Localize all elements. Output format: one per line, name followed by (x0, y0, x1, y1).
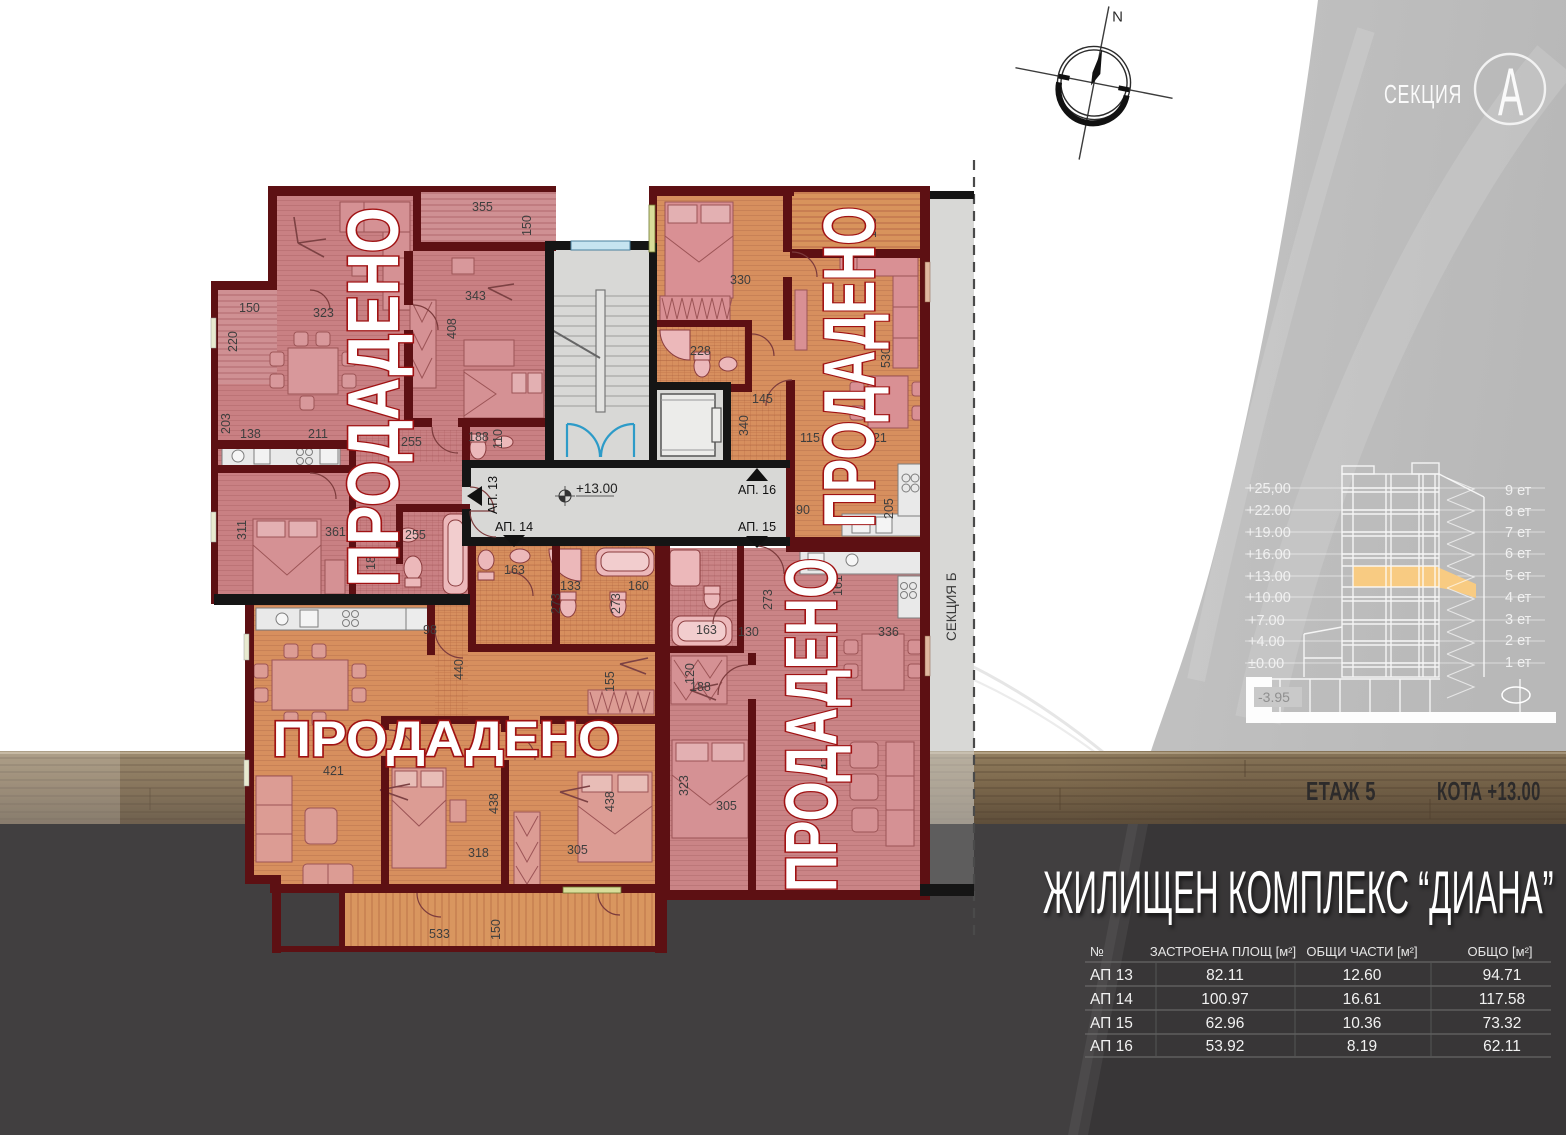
svg-text:+25,00: +25,00 (1246, 481, 1291, 497)
svg-text:73.32: 73.32 (1483, 1015, 1522, 1032)
svg-text:273: 273 (549, 593, 563, 614)
svg-text:8.19: 8.19 (1347, 1038, 1377, 1055)
svg-text:ПРОДАДЕНО: ПРОДАДЕНО (810, 207, 890, 528)
svg-text:АП. 13: АП. 13 (486, 476, 500, 514)
svg-text:3 ет: 3 ет (1505, 612, 1532, 628)
svg-text:62.96: 62.96 (1206, 1015, 1245, 1032)
svg-text:АП. 14: АП. 14 (495, 520, 533, 534)
svg-text:-3.95: -3.95 (1258, 689, 1290, 705)
svg-text:145: 145 (752, 392, 773, 406)
svg-text:100.97: 100.97 (1201, 991, 1248, 1008)
svg-text:273: 273 (609, 593, 623, 614)
svg-text:343: 343 (465, 289, 486, 303)
svg-text:355: 355 (472, 200, 493, 214)
svg-text:188: 188 (690, 680, 711, 694)
svg-text:408: 408 (445, 318, 459, 339)
svg-text:62.11: 62.11 (1483, 1038, 1521, 1055)
svg-text:94.71: 94.71 (1483, 967, 1522, 984)
svg-text:6 ет: 6 ет (1505, 546, 1532, 562)
svg-text:163: 163 (504, 563, 525, 577)
svg-text:+22.00: +22.00 (1246, 503, 1291, 519)
svg-text:АП 14: АП 14 (1090, 991, 1133, 1008)
svg-text:ПРОДАДЕНО: ПРОДАДЕНО (272, 711, 619, 767)
svg-text:2 ет: 2 ет (1505, 633, 1532, 649)
svg-text:203: 203 (219, 413, 233, 434)
svg-text:+19.00: +19.00 (1246, 525, 1291, 541)
svg-text:82.11: 82.11 (1206, 967, 1244, 984)
svg-text:110: 110 (491, 429, 505, 449)
svg-text:5 ет: 5 ет (1505, 568, 1532, 584)
svg-text:+13.00: +13.00 (1246, 569, 1291, 585)
svg-text:305: 305 (716, 799, 737, 813)
svg-text:323: 323 (313, 306, 334, 320)
svg-text:ОБЩИ ЧАСТИ [м²]: ОБЩИ ЧАСТИ [м²] (1306, 944, 1417, 959)
svg-text:1 ет: 1 ет (1505, 655, 1532, 671)
svg-text:130: 130 (738, 625, 759, 639)
svg-text:А: А (1498, 53, 1524, 130)
svg-text:438: 438 (487, 793, 501, 814)
svg-text:ПРОДАДЕНО: ПРОДАДЕНО (333, 207, 413, 586)
svg-text:160: 160 (628, 579, 649, 593)
svg-text:ЖИЛИЩЕН КОМПЛЕКС “ДИАНА”: ЖИЛИЩЕН КОМПЛЕКС “ДИАНА” (1043, 860, 1554, 927)
svg-text:440: 440 (452, 659, 466, 680)
svg-text:10.36: 10.36 (1343, 1015, 1382, 1032)
svg-text:КОТА +13.00: КОТА +13.00 (1437, 776, 1541, 806)
svg-text:98: 98 (423, 623, 437, 637)
svg-text:СЕКЦИЯ Б: СЕКЦИЯ Б (944, 572, 959, 641)
svg-text:117.58: 117.58 (1479, 991, 1525, 1008)
svg-text:163: 163 (696, 623, 717, 637)
svg-text:ЗАСТРОЕНА ПЛОЩ [м²]: ЗАСТРОЕНА ПЛОЩ [м²] (1150, 944, 1296, 959)
svg-text:АП 13: АП 13 (1090, 967, 1133, 984)
svg-text:9 ет: 9 ет (1505, 483, 1532, 499)
svg-text:+10.00: +10.00 (1246, 590, 1291, 606)
svg-text:+16.00: +16.00 (1246, 547, 1291, 563)
svg-text:188: 188 (468, 430, 489, 444)
svg-text:7 ет: 7 ет (1505, 525, 1532, 541)
svg-text:4 ет: 4 ет (1505, 590, 1532, 606)
svg-text:8 ет: 8 ет (1505, 504, 1532, 520)
svg-text:СЕКЦИЯ: СЕКЦИЯ (1384, 80, 1462, 109)
svg-text:311: 311 (235, 520, 249, 540)
svg-text:211: 211 (308, 427, 328, 441)
svg-text:+7.00: +7.00 (1248, 613, 1285, 629)
svg-text:150: 150 (239, 301, 260, 315)
svg-text:155: 155 (603, 671, 617, 692)
svg-text:305: 305 (567, 843, 588, 857)
svg-text:533: 533 (429, 927, 450, 941)
svg-text:±0.00: ±0.00 (1248, 656, 1284, 672)
svg-text:438: 438 (603, 791, 617, 812)
svg-text:ПРОДАДЕНО: ПРОДАДЕНО (772, 558, 853, 892)
svg-text:318: 318 (468, 846, 489, 860)
svg-text:220: 220 (226, 331, 240, 352)
svg-text:№: № (1090, 944, 1104, 959)
svg-text:150: 150 (489, 919, 503, 940)
svg-text:90: 90 (796, 503, 810, 517)
svg-text:ЕТАЖ 5: ЕТАЖ 5 (1306, 777, 1376, 806)
svg-text:336: 336 (878, 625, 899, 639)
svg-text:ОБЩО [м²]: ОБЩО [м²] (1467, 944, 1532, 959)
svg-text:АП 16: АП 16 (1090, 1038, 1133, 1055)
svg-text:138: 138 (240, 427, 261, 441)
svg-text:323: 323 (677, 775, 691, 796)
svg-text:340: 340 (737, 415, 751, 436)
svg-text:АП 15: АП 15 (1090, 1015, 1133, 1032)
svg-text:+13.00: +13.00 (576, 481, 618, 496)
svg-text:АП. 15: АП. 15 (738, 520, 776, 534)
svg-text:N: N (1112, 8, 1123, 25)
svg-text:12.60: 12.60 (1343, 967, 1382, 984)
svg-text:150: 150 (520, 215, 534, 236)
svg-text:133: 133 (560, 579, 581, 593)
svg-text:АП. 16: АП. 16 (738, 483, 776, 497)
svg-text:53.92: 53.92 (1206, 1038, 1245, 1055)
svg-text:16.61: 16.61 (1343, 991, 1382, 1008)
svg-text:228: 228 (690, 344, 711, 358)
svg-text:330: 330 (730, 273, 751, 287)
svg-text:+4.00: +4.00 (1248, 634, 1285, 650)
